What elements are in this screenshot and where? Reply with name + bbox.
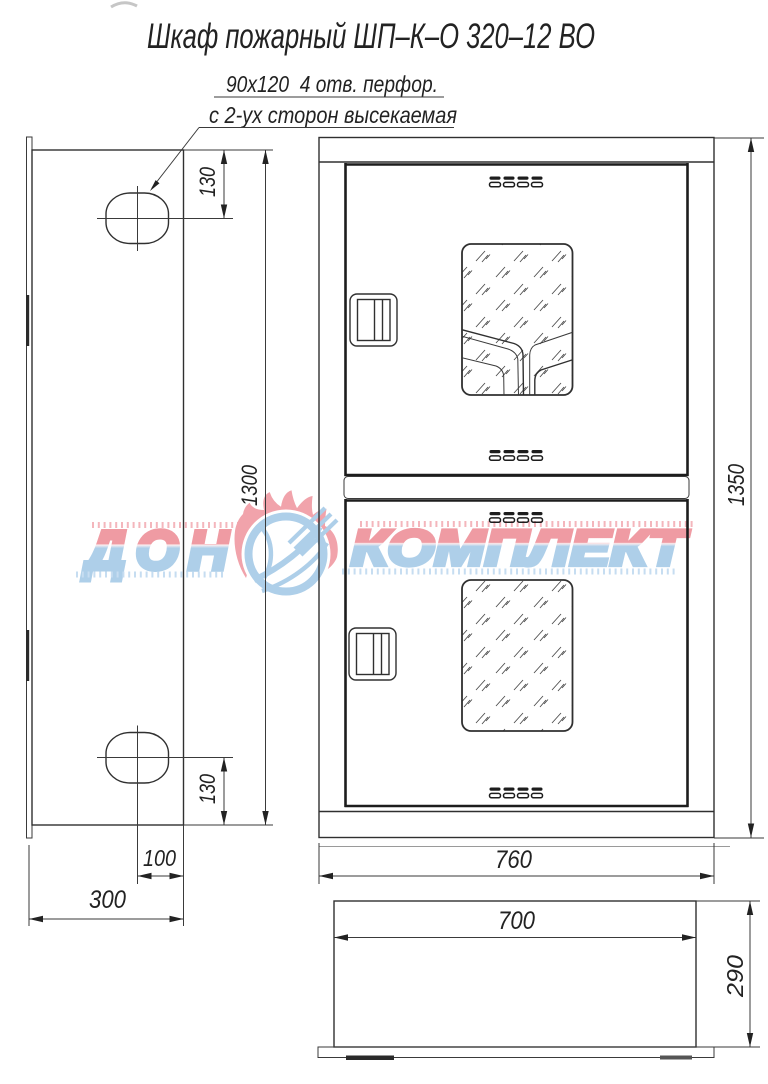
svg-text:Шкаф пожарный ШП–К–О 320–12 ВО: Шкаф пожарный ШП–К–О 320–12 ВО xyxy=(147,17,595,56)
svg-text:90х120 4 отв. перфор.: 90х120 4 отв. перфор. xyxy=(226,71,438,97)
svg-text:290: 290 xyxy=(722,955,748,998)
svg-text:с 2-ух сторон высекаемая: с 2-ух сторон высекаемая xyxy=(209,102,457,128)
svg-text:1300: 1300 xyxy=(237,464,262,506)
svg-text:1350: 1350 xyxy=(723,464,749,506)
svg-text:300: 300 xyxy=(89,886,126,914)
svg-text:760: 760 xyxy=(495,846,532,874)
svg-text:700: 700 xyxy=(498,907,535,935)
svg-text:100: 100 xyxy=(143,845,176,871)
svg-text:130: 130 xyxy=(195,773,220,804)
svg-text:130: 130 xyxy=(195,166,220,197)
